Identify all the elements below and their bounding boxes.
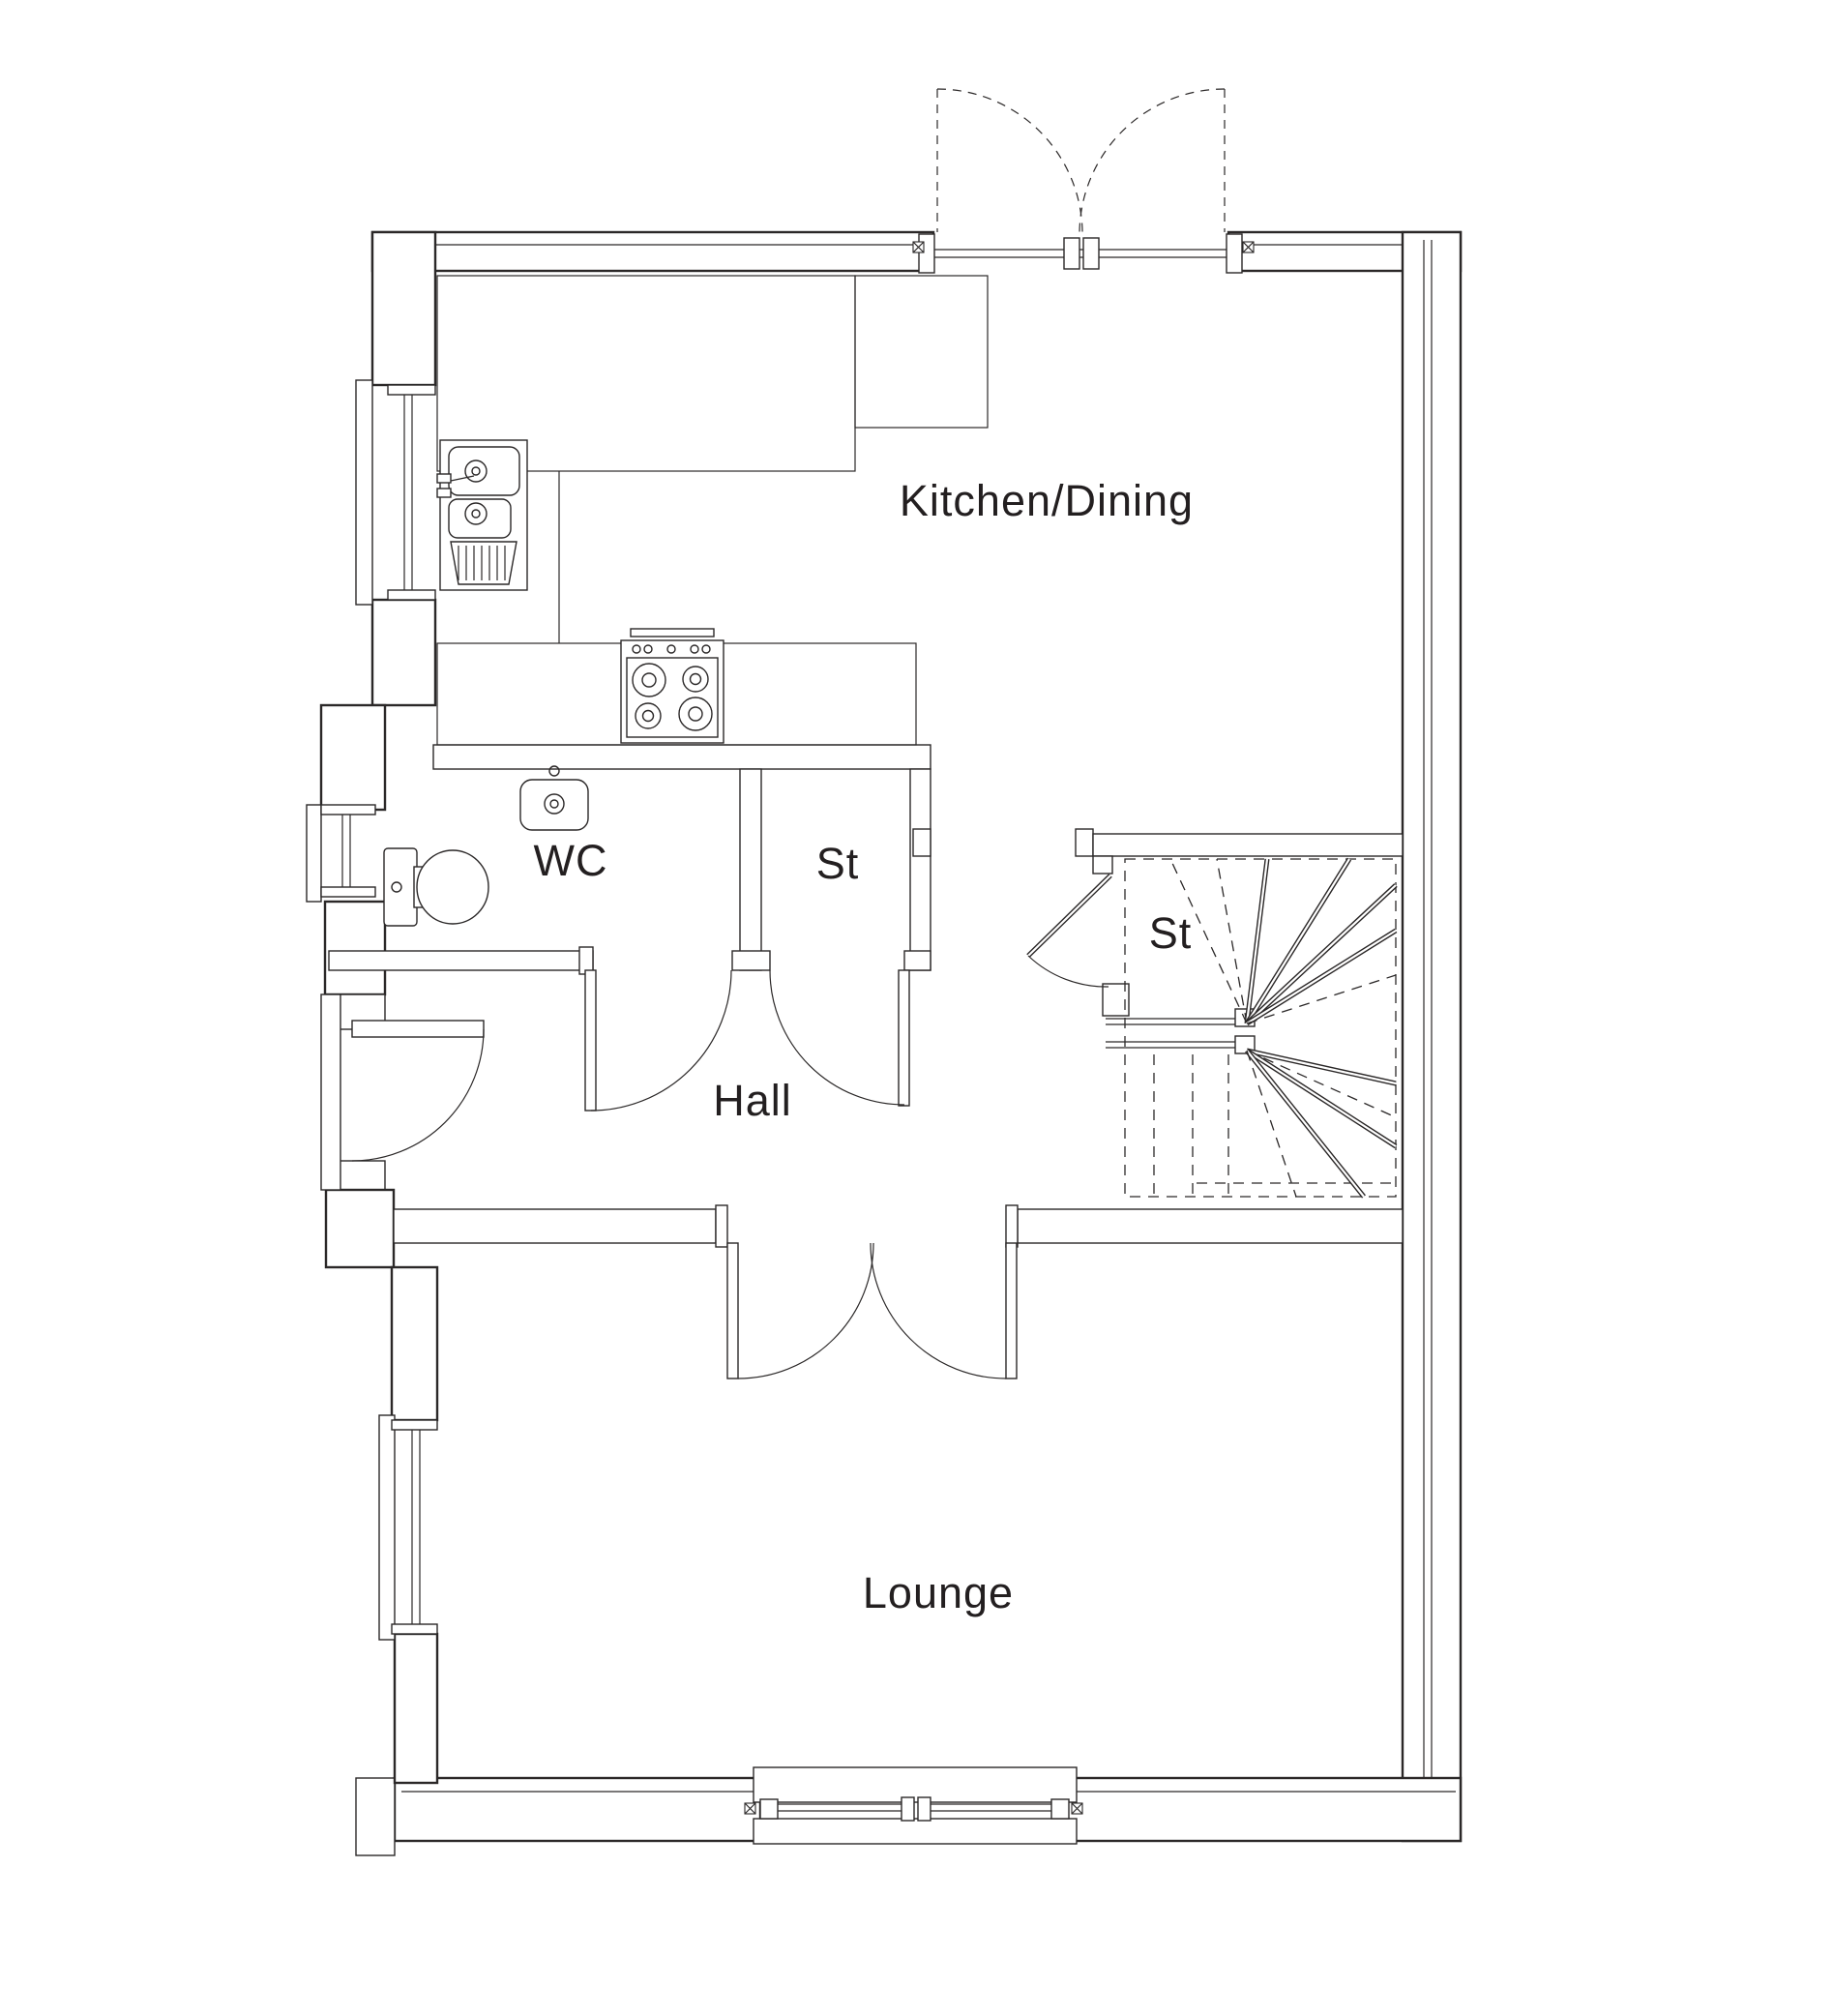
door-jamb — [1006, 1205, 1018, 1247]
wall-left-lounge-upper — [392, 1267, 437, 1420]
stair-winder — [1247, 975, 1396, 1023]
door-leaf-open — [585, 970, 596, 1111]
wall-left-kitchen-lower — [372, 600, 435, 705]
wall-bottom-right — [1067, 1778, 1461, 1841]
floor-plan: Kitchen/Dining WC St St Hall Lounge — [0, 0, 1833, 2016]
toilet-cistern — [384, 848, 417, 926]
wall-left-lounge-lower — [395, 1634, 437, 1783]
door-swing-arc — [937, 89, 1082, 232]
french-doors — [913, 89, 1254, 273]
st-front-wall — [904, 951, 931, 970]
wall-left-wc-lower — [325, 902, 385, 994]
door-pier — [732, 951, 770, 970]
wall-left-kitchen-upper — [372, 232, 435, 385]
kitchen-partition-wall — [433, 745, 931, 769]
door-jamb — [716, 1205, 727, 1247]
window-jamb — [321, 887, 375, 897]
window-sill — [307, 805, 321, 902]
basin-drain — [550, 800, 558, 808]
passage-jamb — [1076, 829, 1093, 856]
window-board — [754, 1767, 1077, 1802]
window-jamb — [321, 805, 375, 815]
room-label-hall: Hall — [713, 1076, 792, 1125]
window-jamb — [1051, 1799, 1069, 1819]
wc-st-divider-wall — [740, 769, 761, 970]
st-right-wall — [910, 769, 931, 970]
stair-winder — [1247, 931, 1396, 1023]
door-swing-arc — [591, 970, 731, 1111]
window-jamb — [392, 1624, 437, 1634]
door-leaf-open — [1028, 875, 1110, 956]
passage-jamb — [913, 829, 931, 856]
wc-door — [585, 970, 731, 1111]
door-swing-arc — [1028, 956, 1109, 987]
door-swing-arc — [738, 1243, 873, 1379]
door-leaf-open — [727, 1243, 738, 1379]
basin-drain — [545, 794, 564, 814]
kitchen-sink-icon — [437, 440, 527, 590]
stairs-top-wall — [1093, 834, 1403, 856]
lounge-side-window — [379, 1415, 437, 1640]
room-label-st-understairs: St — [1149, 908, 1193, 958]
door-leaf-open — [1006, 1243, 1017, 1379]
window-jamb — [388, 385, 435, 395]
sink-tap — [437, 474, 451, 483]
door-swing-arc — [352, 1029, 484, 1161]
sink-tap — [437, 489, 451, 497]
hob-splashback — [631, 629, 714, 637]
wall-top-left — [372, 232, 933, 271]
door-jamb — [1227, 234, 1242, 273]
stair-winder — [1247, 1051, 1396, 1117]
room-label-st-cupboard: St — [816, 839, 860, 888]
meeting-stile — [1064, 238, 1079, 269]
basin-icon — [520, 766, 588, 830]
door-jamb — [919, 234, 934, 273]
toilet-bowl — [417, 850, 488, 924]
hob-icon — [621, 629, 724, 743]
window-sill — [754, 1819, 1077, 1844]
hob-body — [621, 640, 724, 743]
window-jamb — [760, 1799, 778, 1819]
stairs-left-stub — [1093, 856, 1112, 874]
basin-bowl — [520, 780, 588, 830]
room-label-lounge: Lounge — [863, 1568, 1014, 1617]
room-label-kitchen-dining: Kitchen/Dining — [900, 476, 1194, 525]
windows — [307, 380, 1082, 1844]
room-label-wc: WC — [534, 836, 608, 885]
window-mullion — [902, 1797, 914, 1821]
wall-bottom-left — [395, 1778, 760, 1841]
lounge-double-doors — [727, 1243, 1017, 1379]
door-leaf-open — [899, 970, 909, 1106]
toilet-icon — [384, 848, 488, 926]
window-sill — [379, 1415, 395, 1640]
lounge-bottom-window — [745, 1767, 1082, 1844]
window-jamb — [392, 1420, 437, 1430]
stair-winder — [1247, 1051, 1296, 1197]
wc-front-wall — [329, 951, 593, 970]
wc-window — [307, 805, 375, 902]
door-swing-arc — [1079, 89, 1225, 232]
worktop-top-right — [855, 276, 988, 428]
window-sill — [356, 380, 372, 605]
lounge-partition-left — [394, 1209, 716, 1243]
wall-left-wc-upper — [321, 705, 385, 810]
door-swing-arc — [871, 1243, 1006, 1379]
sink-unit — [440, 440, 527, 590]
stair-winder — [1217, 859, 1247, 1023]
kitchen-window — [356, 380, 435, 605]
wall-left-recess — [326, 1190, 394, 1267]
understairs-door — [1028, 875, 1110, 987]
door-leaf-open — [352, 1021, 484, 1037]
meeting-stile — [1083, 238, 1099, 269]
window-jamb — [388, 590, 435, 600]
corner-pier — [356, 1778, 395, 1855]
window-mullion — [918, 1797, 931, 1821]
lounge-partition-right — [1018, 1209, 1403, 1243]
threshold-hatch — [321, 994, 340, 1190]
